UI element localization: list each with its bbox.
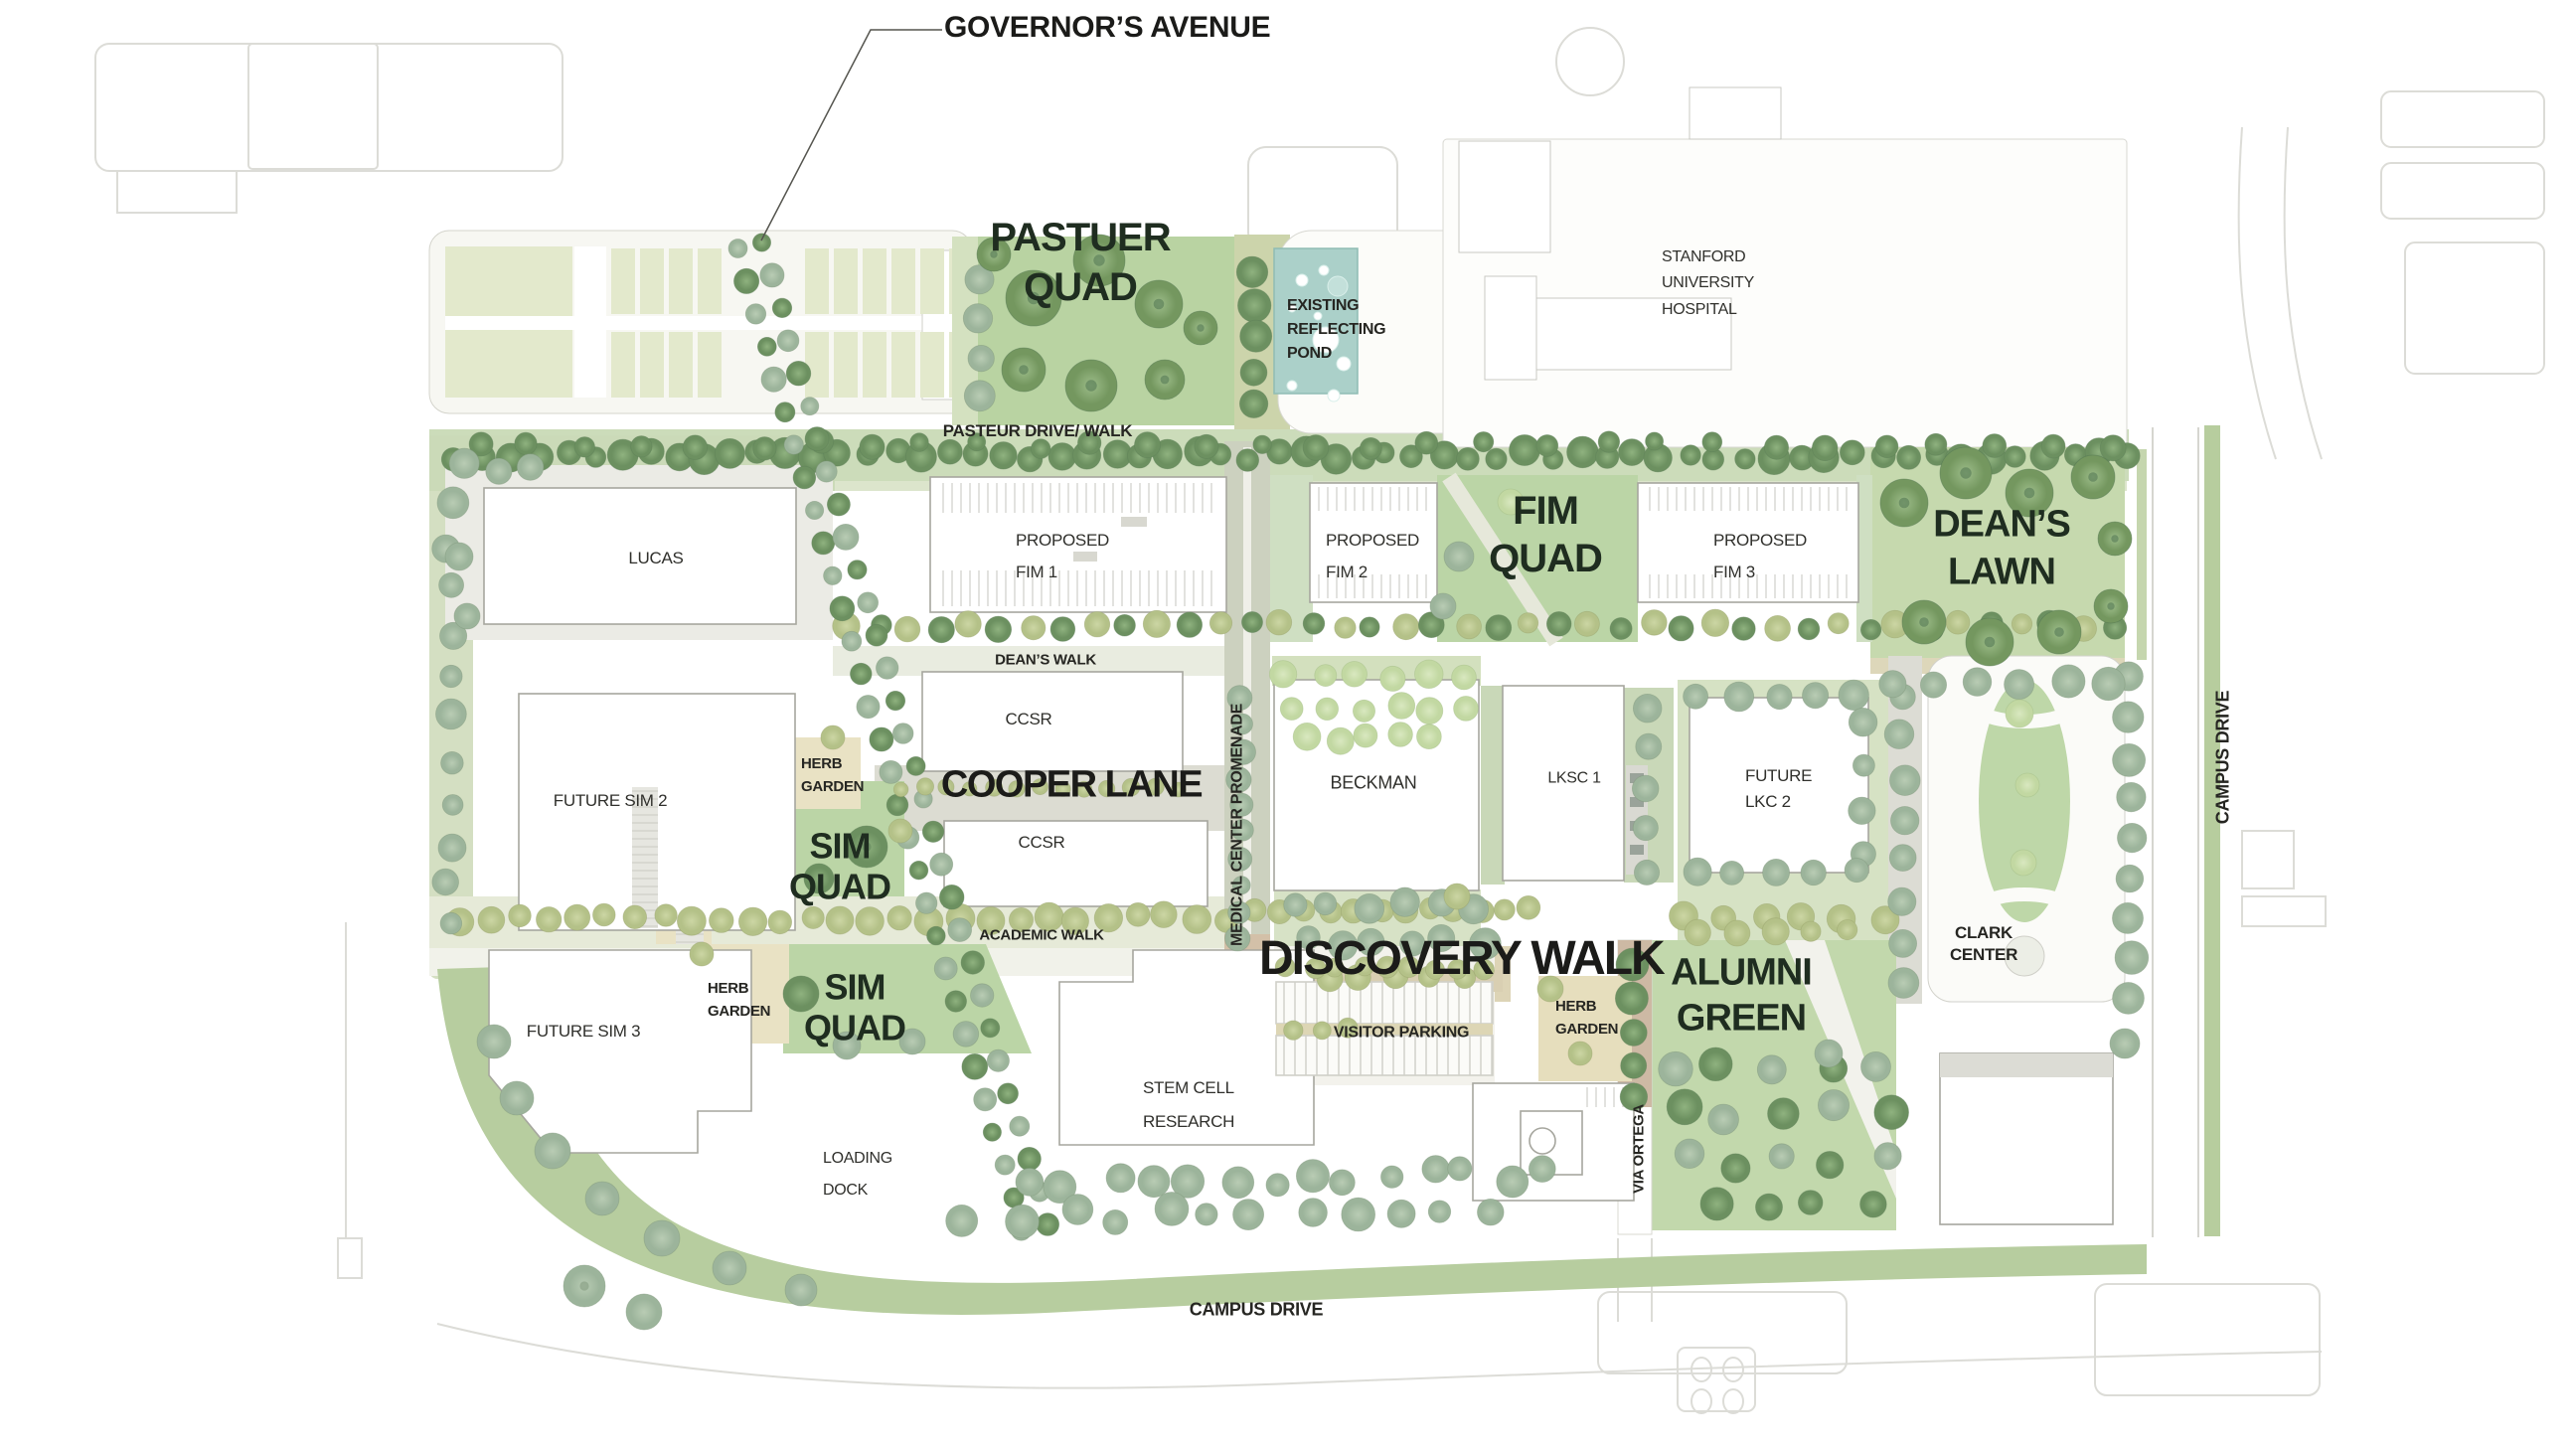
label-pasteur-drive-walk: PASTEUR DRIVE/ WALK (943, 420, 1132, 442)
label-herb-garden-southwest: HERB GARDEN (708, 978, 770, 1023)
label-proposed-fim-3: PROPOSED FIM 3 (1713, 525, 1807, 589)
label-future-sim-2: FUTURE SIM 2 (554, 790, 667, 812)
label-discovery-walk: DISCOVERY WALK (1259, 928, 1664, 990)
label-sim-quad-south: SIM QUAD (804, 967, 905, 1049)
label-lucas: LUCAS (628, 548, 683, 569)
label-clark-center: CLARK CENTER (1950, 922, 2017, 966)
label-deans-lawn: DEAN’S LAWN (1933, 502, 2070, 596)
label-alumni-green: ALUMNI GREEN (1671, 950, 1812, 1041)
campus-master-plan-map: GOVERNOR’S AVENUE PASTUER QUAD EXISTING … (0, 0, 2576, 1449)
label-fim-quad: FIM QUAD (1489, 487, 1602, 582)
label-stem-cell-research: STEM CELL RESEARCH (1143, 1071, 1234, 1139)
label-loading-dock: LOADING DOCK (823, 1143, 892, 1207)
site-plan-drawing (0, 0, 2576, 1449)
label-proposed-fim-2: PROPOSED FIM 2 (1326, 525, 1419, 589)
label-existing-reflecting-pond: EXISTING REFLECTING POND (1287, 294, 1385, 366)
label-ccsr-north: CCSR (1006, 709, 1052, 730)
label-governors-avenue: GOVERNOR’S AVENUE (944, 8, 1270, 47)
label-herb-garden-west: HERB GARDEN (801, 753, 864, 798)
label-proposed-fim-1: PROPOSED FIM 1 (1016, 525, 1109, 589)
governors-avenue-leader-line (761, 30, 942, 241)
label-beckman: BECKMAN (1331, 771, 1417, 794)
label-via-ortega: VIA ORTEGA (1629, 1104, 1649, 1194)
label-campus-drive-south: CAMPUS DRIVE (1190, 1298, 1323, 1321)
label-herb-garden-central: HERB GARDEN (1555, 996, 1618, 1041)
label-visitor-parking: VISITOR PARKING (1334, 1024, 1469, 1045)
label-deans-walk: DEAN’S WALK (995, 650, 1096, 670)
label-campus-drive-east: CAMPUS DRIVE (2211, 691, 2234, 824)
label-future-sim-3: FUTURE SIM 3 (527, 1021, 640, 1043)
label-lksc-1: LKSC 1 (1547, 769, 1600, 790)
label-stanford-university-hospital: STANFORD UNIVERSITY HOSPITAL (1662, 244, 1754, 323)
label-sim-quad-north: SIM QUAD (789, 826, 890, 908)
label-ccsr-south: CCSR (1019, 832, 1065, 854)
label-cooper-lane: COOPER LANE (941, 760, 1202, 809)
label-medical-center-promenade: MEDICAL CENTER PROMENADE (1228, 704, 1249, 946)
label-academic-walk: ACADEMIC WALK (979, 925, 1103, 945)
label-pastuer-quad: PASTUER QUAD (990, 213, 1170, 312)
label-future-lkc-2: FUTURE LKC 2 (1745, 763, 1812, 816)
